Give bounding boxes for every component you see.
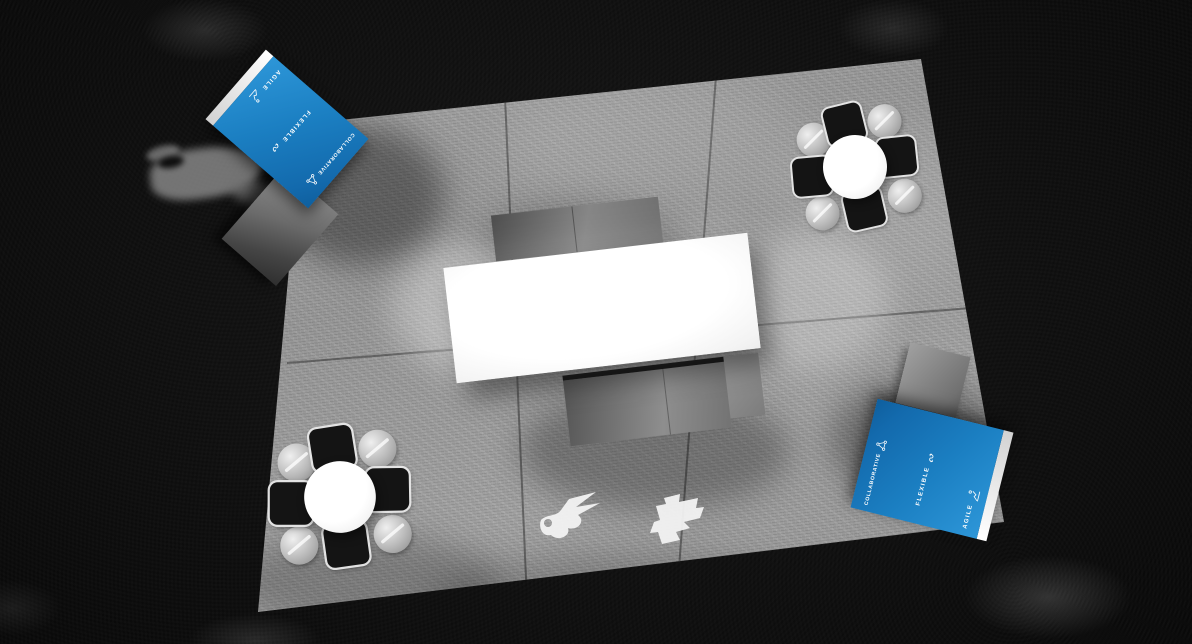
chair-base-disc [865, 101, 904, 140]
seating-group-top-right [768, 80, 942, 254]
booth-render-scene: AGILE FLEXIBLE COLLABORATIVE [0, 0, 1192, 644]
floor-logo-right [646, 492, 706, 546]
banner-column-flexible: FLEXIBLE [258, 96, 323, 168]
banner-word: AGILE [260, 68, 281, 91]
seating-group-bottom-left [249, 406, 431, 588]
floor-logo-left [538, 490, 602, 542]
chair-base-disc [372, 513, 413, 554]
light-pool-top [500, 80, 810, 210]
chair-base-disc [279, 525, 320, 566]
banner-word: FLEXIBLE [916, 466, 932, 506]
banner-word: FLEXIBLE [280, 109, 311, 143]
banner-word: AGILE [962, 503, 974, 529]
shadow-floor-bottom-edge [430, 555, 830, 644]
agile-icon [966, 487, 982, 503]
flexible-icon [923, 450, 939, 466]
chair-base-disc [885, 176, 924, 215]
collaborative-icon [874, 437, 889, 452]
banner-column-flexible: FLEXIBLE [909, 417, 947, 521]
banner-word: COLLABORATIVE [864, 453, 883, 506]
chair-base-disc [803, 194, 842, 233]
chair-base-disc [357, 428, 398, 469]
